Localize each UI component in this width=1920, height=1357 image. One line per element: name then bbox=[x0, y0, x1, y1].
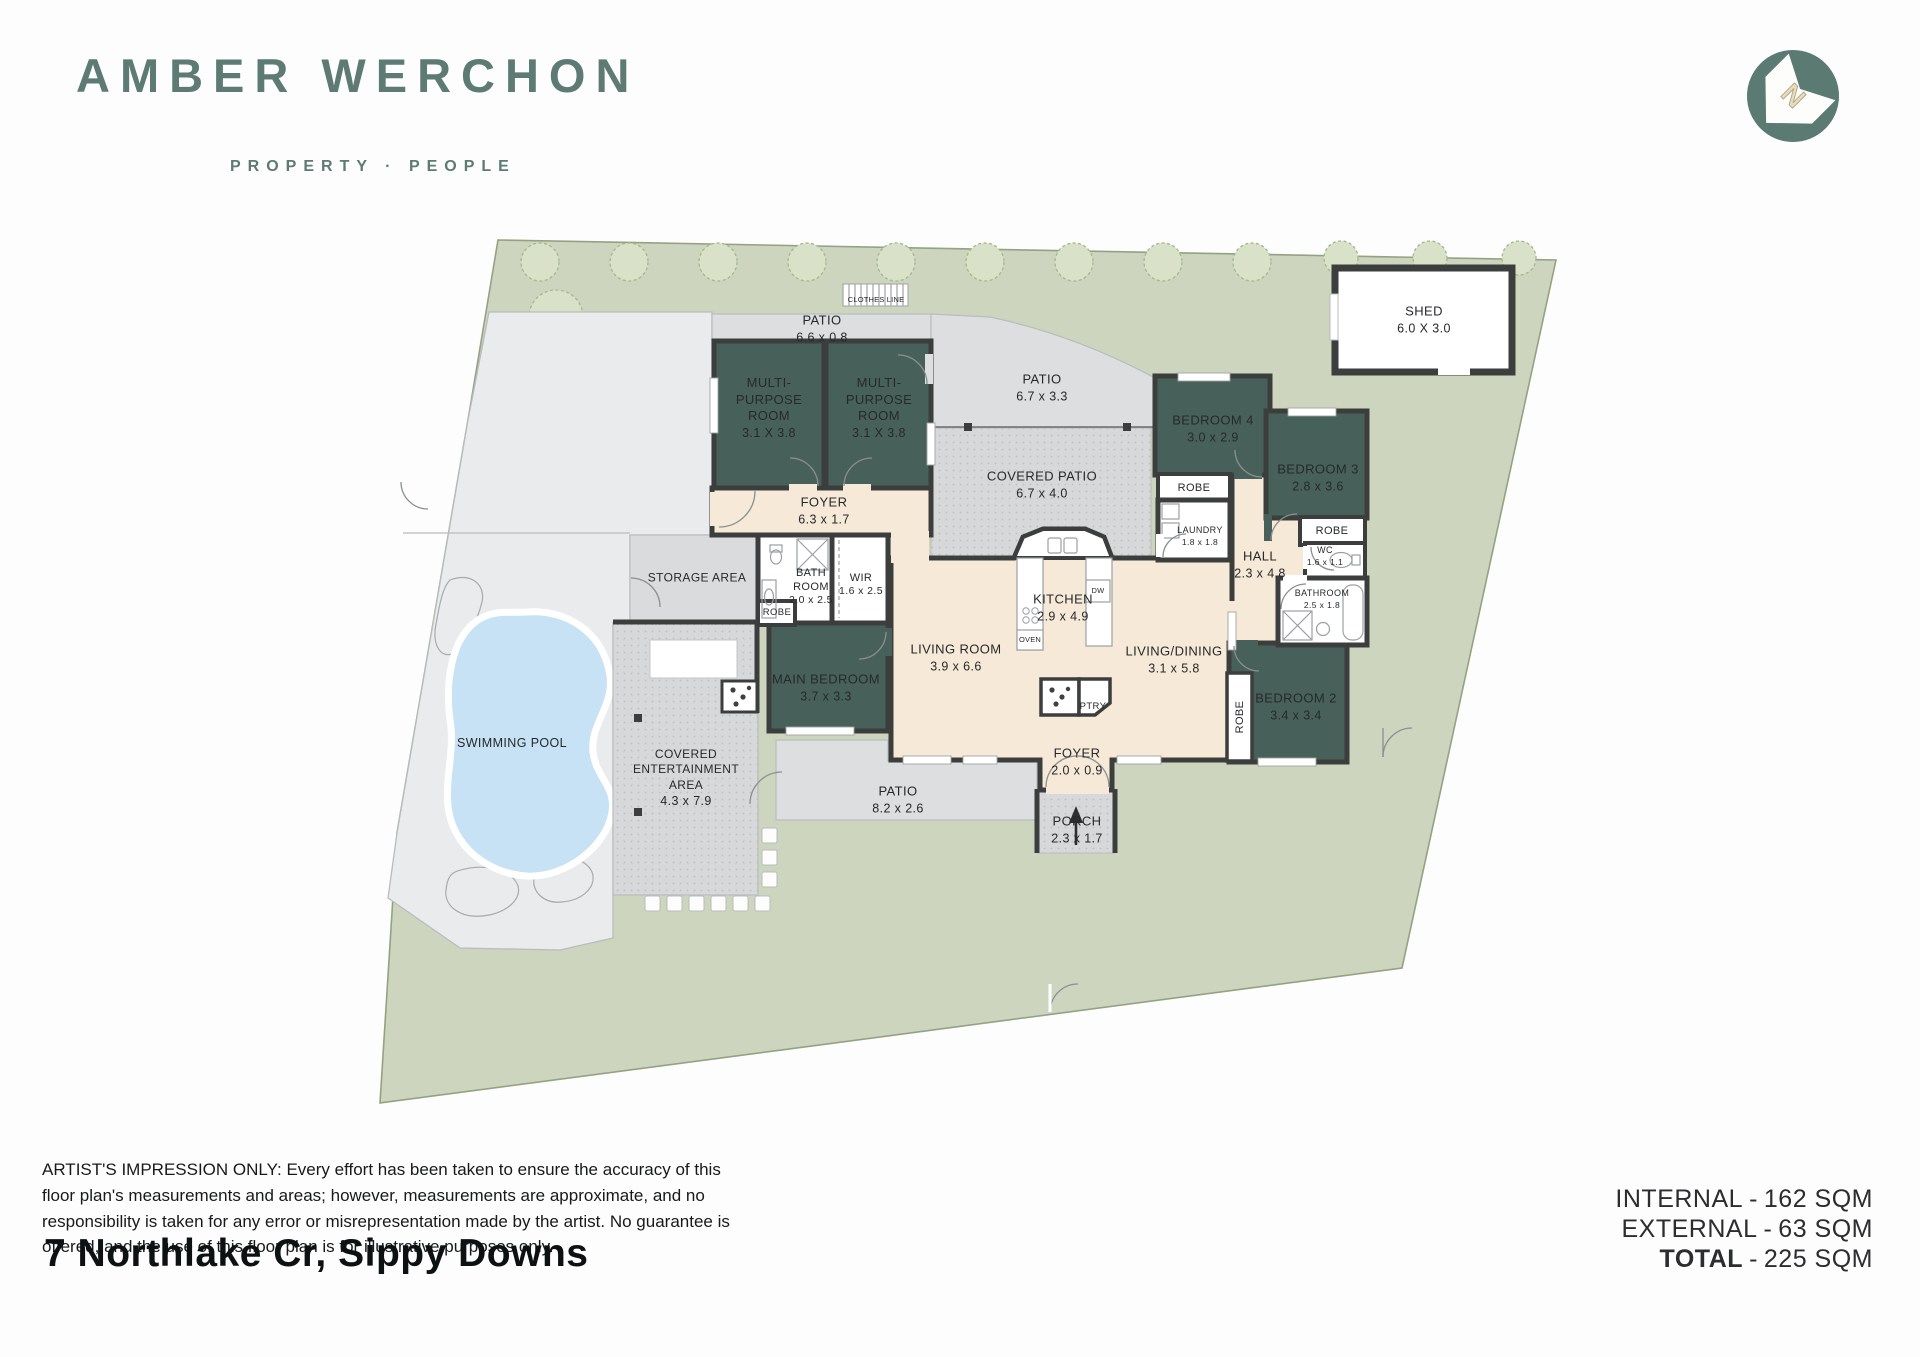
bbq-icon bbox=[722, 681, 757, 712]
room-label-bedroom-4: BEDROOM 43.0 x 2.9 bbox=[1172, 413, 1254, 446]
room-label-clothes-line: CLOTHES LINE bbox=[848, 295, 905, 305]
room-label-robe-4: ROBE bbox=[1178, 481, 1211, 495]
room-label-living-dining: LIVING/DINING3.1 x 5.8 bbox=[1126, 644, 1223, 677]
room-label-foyer-rear: FOYER6.3 x 1.7 bbox=[798, 495, 850, 528]
room-label-storage: STORAGE AREA bbox=[648, 570, 747, 585]
room-label-multi-purpose-1: MULTI-PURPOSE ROOM3.1 X 3.8 bbox=[727, 375, 811, 441]
room-label-swimming-pool: SWIMMING POOL bbox=[457, 735, 567, 751]
room-label-main-bedroom: MAIN BEDROOM3.7 x 3.3 bbox=[772, 672, 880, 705]
room-label-robe-main: ROBE bbox=[763, 607, 792, 619]
floor-plan-page: AMBER WERCHON PROPERTY · PEOPLE N PATIO6… bbox=[0, 0, 1920, 1357]
room-label-wc: WC1.6 x 1.1 bbox=[1307, 545, 1343, 567]
room-label-kitchen: KITCHEN2.9 x 4.9 bbox=[1033, 592, 1093, 625]
room-label-dw: DW bbox=[1092, 586, 1105, 596]
room-label-robe-2: ROBE bbox=[1233, 701, 1247, 734]
floor-plan-drawing bbox=[0, 0, 1920, 1357]
brand-logo: AMBER WERCHON bbox=[76, 48, 639, 103]
area-row-total: TOTAL-225 SQM bbox=[1615, 1244, 1873, 1274]
kitchen-bay-window bbox=[1014, 529, 1112, 558]
room-label-bathroom-2: BATHROOM2.5 x 1.8 bbox=[1295, 588, 1350, 610]
room-label-patio-front: PATIO8.2 x 2.6 bbox=[872, 784, 924, 817]
room-label-porch: PORCH2.3 x 1.7 bbox=[1051, 814, 1103, 847]
room-label-oven: OVEN bbox=[1019, 635, 1041, 645]
room-label-bedroom-2: BEDROOM 23.4 x 3.4 bbox=[1255, 691, 1337, 724]
north-compass-icon: N bbox=[1733, 36, 1853, 156]
room-label-patio-rear: PATIO6.6 x 0.8 bbox=[796, 313, 848, 346]
room-label-wir: WIR1.6 x 2.5 bbox=[839, 571, 883, 599]
room-label-foyer-front: FOYER2.0 x 0.9 bbox=[1051, 746, 1103, 779]
area-row-external: EXTERNAL-63 SQM bbox=[1615, 1214, 1873, 1244]
room-label-multi-purpose-2: MULTI-PURPOSE ROOM3.1 X 3.8 bbox=[837, 375, 921, 441]
room-label-covered-patio: COVERED PATIO6.7 x 4.0 bbox=[987, 469, 1097, 502]
room-label-patio-mid: PATIO6.7 x 3.3 bbox=[1016, 372, 1068, 405]
room-label-hall: HALL2.3 x 4.8 bbox=[1234, 549, 1286, 582]
area-summary: INTERNAL-162 SQM EXTERNAL-63 SQM TOTAL-2… bbox=[1615, 1184, 1873, 1274]
area-row-internal: INTERNAL-162 SQM bbox=[1615, 1184, 1873, 1214]
property-address: 7 Northlake Cr, Sippy Downs bbox=[44, 1232, 588, 1276]
room-label-entertainment: COVERED ENTERTAINMENT AREA4.3 x 7.9 bbox=[616, 747, 756, 809]
room-label-living-room: LIVING ROOM3.9 x 6.6 bbox=[910, 642, 1001, 675]
room-label-laundry: LAUNDRY1.8 x 1.8 bbox=[1177, 525, 1223, 547]
room-label-shed: SHED6.0 X 3.0 bbox=[1397, 304, 1451, 337]
room-label-ptry: PTRY bbox=[1080, 701, 1107, 713]
brand-tagline: PROPERTY · PEOPLE bbox=[230, 158, 516, 176]
room-label-robe-3: ROBE bbox=[1316, 524, 1349, 538]
room-label-bath-room: BATH ROOM2.0 x 2.5 bbox=[787, 566, 835, 608]
room-label-bedroom-3: BEDROOM 32.8 x 3.6 bbox=[1277, 462, 1359, 495]
foyer-living-opening bbox=[891, 531, 929, 563]
